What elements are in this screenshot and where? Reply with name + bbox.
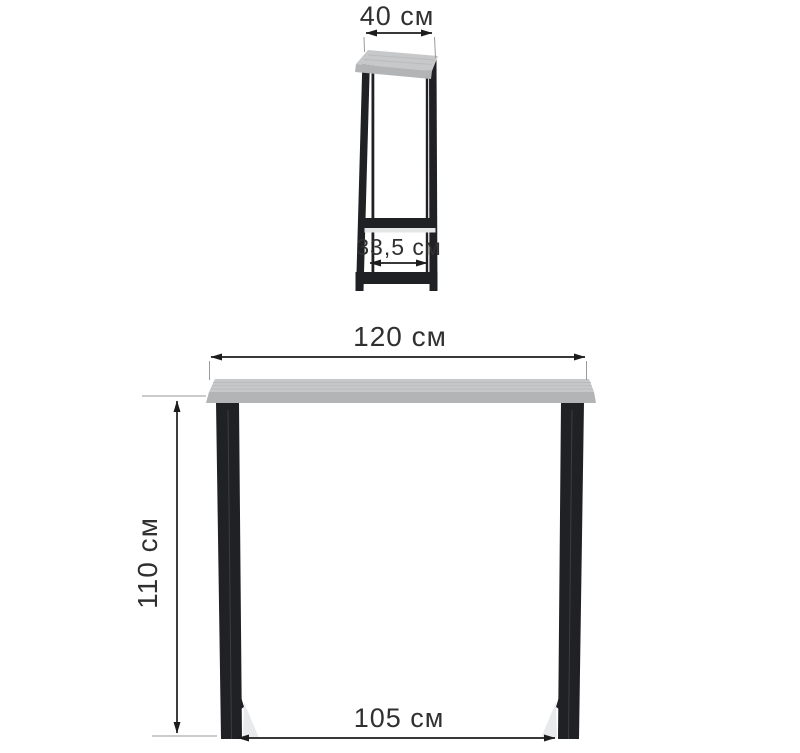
dimension-leg-inner-width-label: 105 см <box>354 703 445 733</box>
dimension-width: 120 см <box>210 321 587 380</box>
dimension-width-label: 120 см <box>353 321 447 352</box>
side-view-stretcher <box>365 218 436 228</box>
dimension-depth: 40 см <box>360 1 436 58</box>
dimension-leg-inner-depth: 33,5 см <box>356 234 441 263</box>
dimension-leg-inner-depth-label: 33,5 см <box>356 234 441 260</box>
dimension-leg-inner-width: 105 см <box>238 703 555 738</box>
front-view: 120 см 110 см 105 см <box>132 321 596 739</box>
dimension-height: 110 см <box>132 396 217 736</box>
dimension-depth-label: 40 см <box>360 1 435 31</box>
front-view-floor-shadow <box>541 702 557 738</box>
dimension-depth-extension <box>364 37 365 52</box>
dimension-height-label: 110 см <box>132 517 163 609</box>
front-view-leg <box>216 402 242 739</box>
side-view-foot <box>430 284 438 291</box>
bar-table-dimension-drawing: 40 см 33,5 см <box>0 0 800 753</box>
side-view: 40 см 33,5 см <box>355 1 442 291</box>
side-view-bottom-bar <box>356 272 438 284</box>
side-view-foot <box>356 284 364 291</box>
front-view-leg <box>558 402 584 739</box>
dimension-depth-extension <box>435 37 436 58</box>
side-view-stretcher-shadow <box>365 228 436 233</box>
front-view-floor-shadow <box>243 702 259 738</box>
front-view-tabletop-edge <box>206 392 596 403</box>
product-dimension-diagram: 40 см 33,5 см <box>0 0 800 753</box>
